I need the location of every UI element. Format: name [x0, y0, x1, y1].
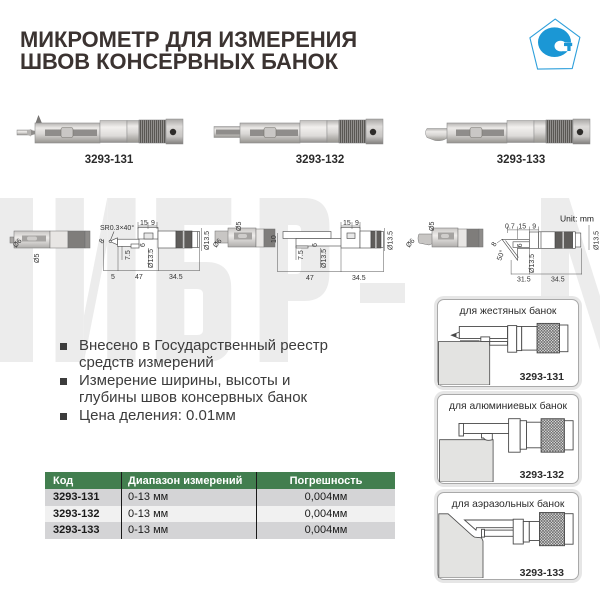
- svg-text:SR0.3×40°: SR0.3×40°: [100, 224, 134, 232]
- svg-text:Ø5: Ø5: [429, 222, 436, 231]
- svg-text:34.5: 34.5: [169, 274, 183, 281]
- svg-text:9: 9: [532, 224, 536, 231]
- svg-text:34.5: 34.5: [551, 277, 565, 284]
- svg-text:6: 6: [140, 243, 147, 247]
- svg-text:Unit: mm: Unit: mm: [560, 214, 594, 224]
- svg-text:7.5: 7.5: [125, 250, 132, 260]
- svg-text:8: 8: [98, 238, 106, 246]
- svg-text:5: 5: [111, 274, 115, 281]
- svg-text:Ø13.5: Ø13.5: [204, 231, 211, 250]
- svg-text:9: 9: [355, 220, 359, 227]
- svg-text:Ø13.5: Ø13.5: [529, 254, 536, 273]
- svg-text:15: 15: [518, 224, 526, 231]
- svg-text:50°: 50°: [495, 249, 506, 262]
- svg-text:10: 10: [271, 235, 278, 243]
- svg-text:6: 6: [517, 243, 524, 247]
- svg-text:34.5: 34.5: [352, 275, 366, 282]
- svg-text:Ø5: Ø5: [34, 254, 41, 263]
- svg-text:6: 6: [312, 243, 319, 247]
- svg-text:8: 8: [491, 241, 499, 248]
- svg-text:47: 47: [306, 275, 314, 282]
- svg-text:15: 15: [140, 220, 148, 227]
- svg-text:0.7: 0.7: [505, 224, 515, 231]
- svg-text:31.5: 31.5: [517, 277, 531, 284]
- svg-text:Ø13.5: Ø13.5: [388, 231, 395, 250]
- svg-text:Ø6: Ø6: [405, 238, 416, 250]
- svg-text:15: 15: [343, 220, 351, 227]
- svg-text:9: 9: [151, 220, 155, 227]
- svg-text:Ø13.5: Ø13.5: [148, 249, 155, 268]
- svg-text:Ø5: Ø5: [236, 222, 243, 231]
- svg-text:7.5: 7.5: [298, 250, 305, 260]
- svg-text:47: 47: [135, 274, 143, 281]
- svg-text:Ø13.5: Ø13.5: [594, 231, 600, 250]
- svg-text:Ø13.5: Ø13.5: [321, 249, 328, 268]
